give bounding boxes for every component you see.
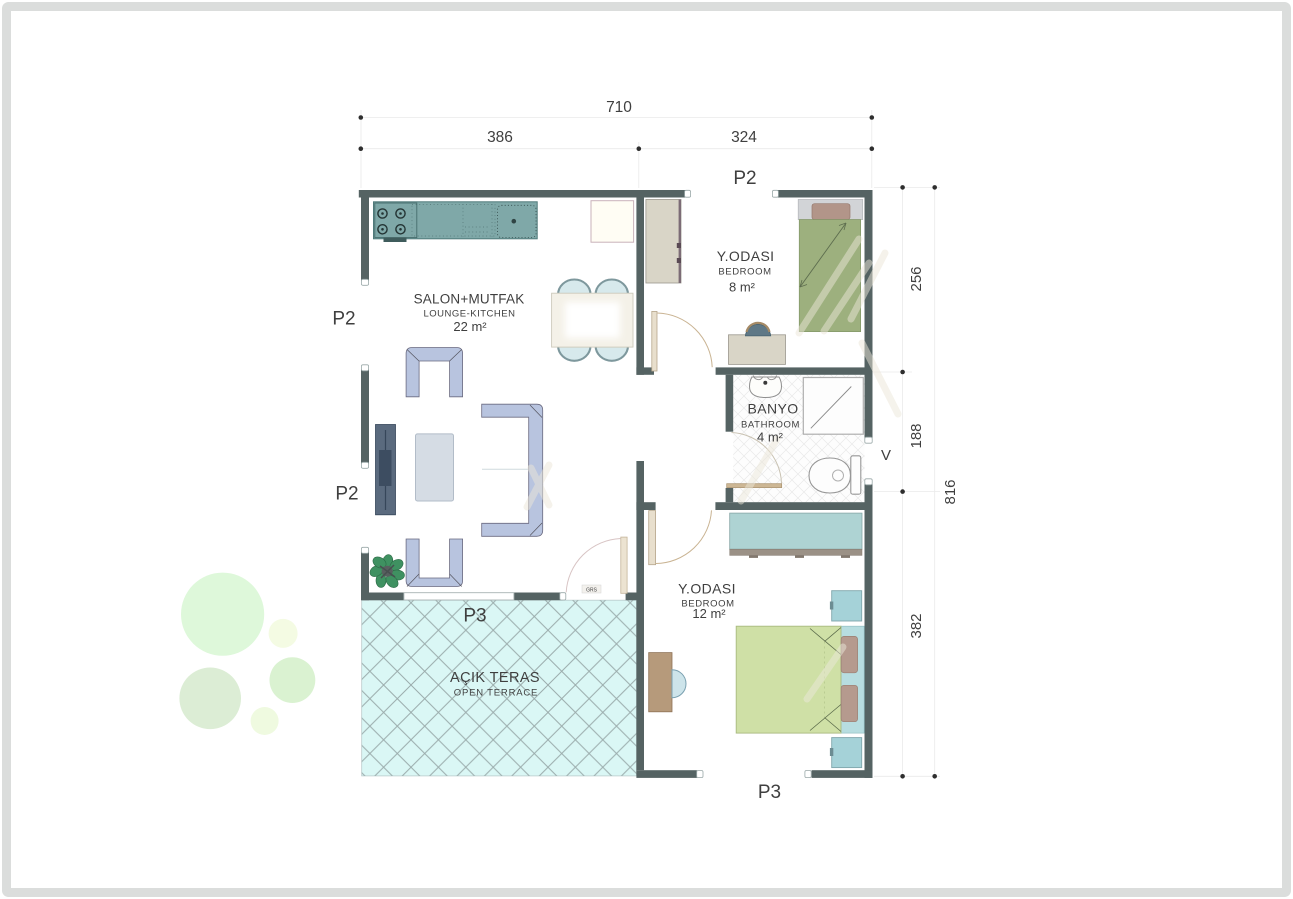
svg-text:12 m²: 12 m²: [692, 606, 726, 621]
svg-text:BANYO: BANYO: [747, 401, 798, 417]
svg-text:P3: P3: [463, 606, 486, 627]
svg-text:OPEN TERRACE: OPEN TERRACE: [454, 688, 538, 699]
svg-text:SALON+MUTFAK: SALON+MUTFAK: [414, 292, 525, 307]
svg-text:382: 382: [908, 613, 925, 638]
svg-text:BEDROOM: BEDROOM: [718, 267, 771, 278]
svg-text:P3: P3: [758, 782, 781, 803]
svg-text:AÇIK TERAS: AÇIK TERAS: [450, 670, 540, 686]
svg-text:V: V: [881, 447, 891, 464]
svg-text:22 m²: 22 m²: [453, 319, 487, 334]
svg-text:Y.ODASI: Y.ODASI: [678, 581, 736, 597]
svg-text:256: 256: [908, 266, 925, 291]
svg-text:710: 710: [606, 99, 632, 116]
svg-text:816: 816: [942, 479, 959, 504]
svg-text:4 m²: 4 m²: [757, 430, 784, 445]
svg-text:Y.ODASI: Y.ODASI: [717, 248, 775, 264]
svg-text:386: 386: [487, 129, 513, 146]
svg-text:8 m²: 8 m²: [729, 280, 756, 295]
svg-text:324: 324: [731, 129, 757, 146]
svg-text:P2: P2: [733, 168, 756, 189]
svg-text:GRS: GRS: [586, 587, 598, 593]
svg-text:P2: P2: [335, 484, 358, 505]
svg-text:P2: P2: [332, 309, 355, 330]
svg-text:LOUNGE-KITCHEN: LOUNGE-KITCHEN: [424, 309, 516, 320]
svg-text:188: 188: [908, 423, 925, 448]
